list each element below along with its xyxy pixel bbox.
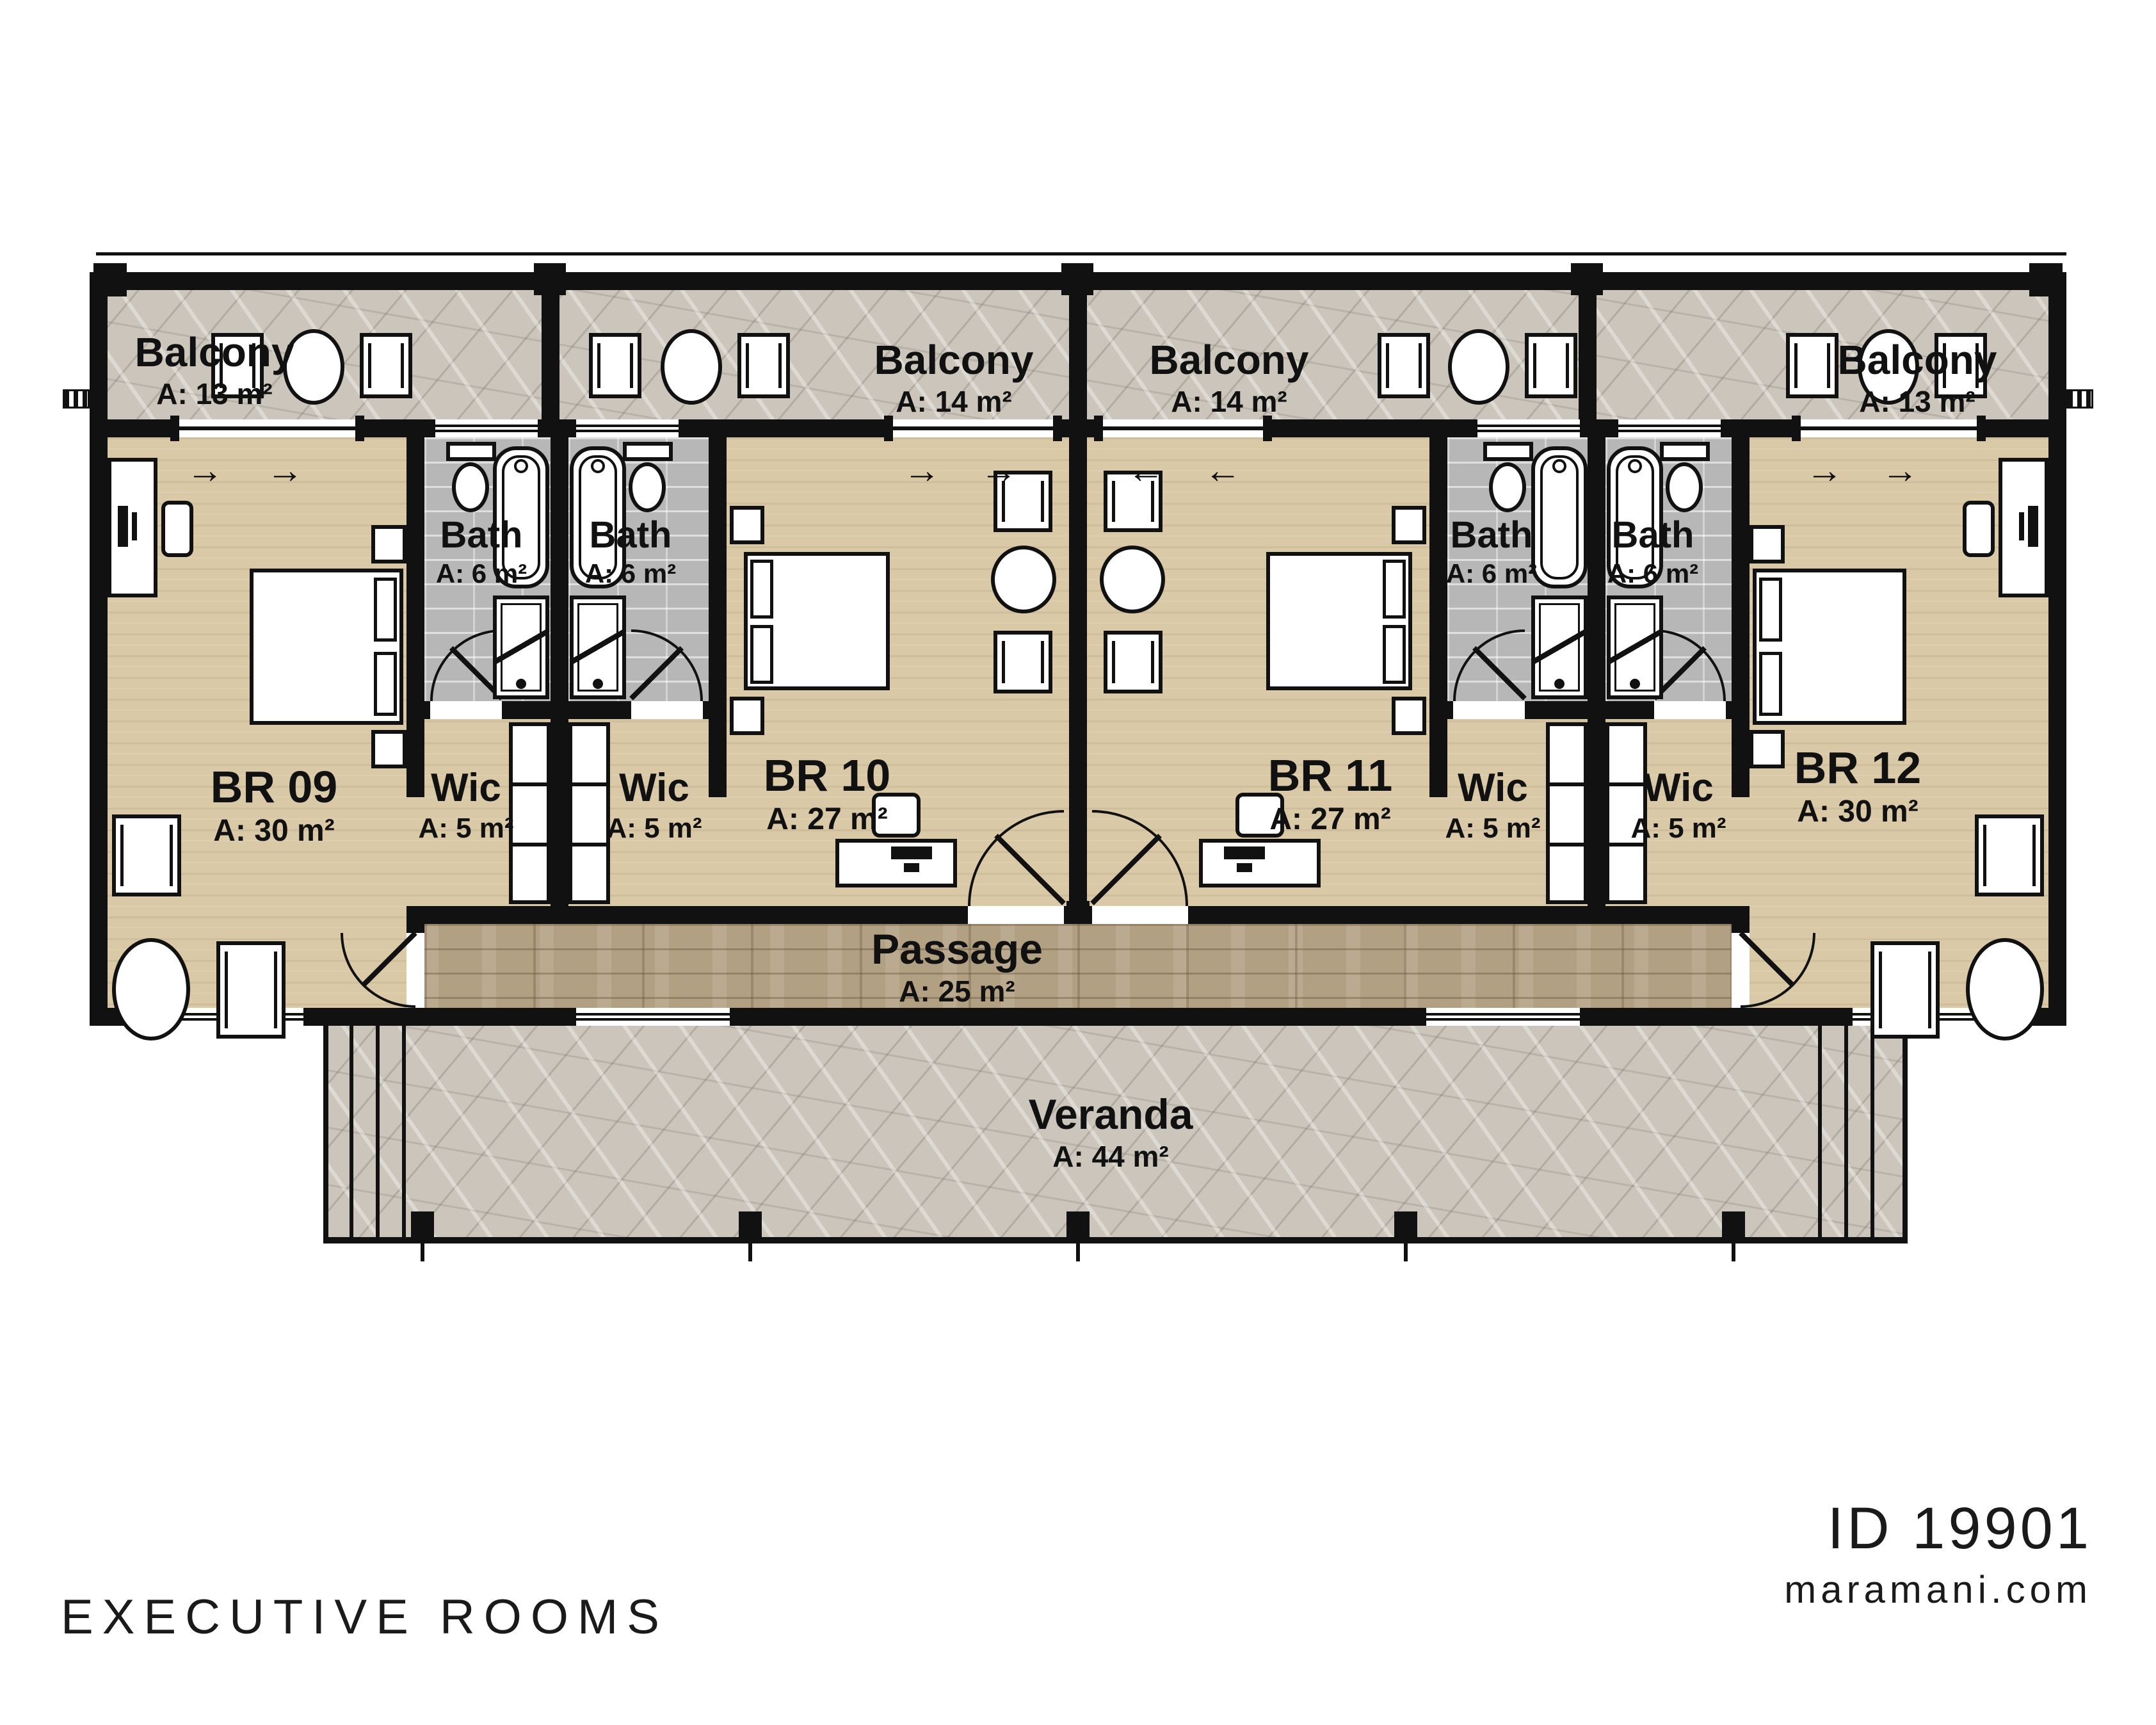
pillow: [374, 578, 397, 642]
monitor-icon: [1224, 846, 1265, 859]
room-area: A: 27 m²: [1269, 804, 1390, 835]
pillow: [750, 560, 773, 619]
bathcol-mid-wall: [1588, 437, 1605, 906]
room-label-wic-4: Wic A: 5 m²: [1630, 768, 1726, 843]
round-table: [112, 938, 190, 1041]
step-riser: [376, 1026, 380, 1242]
bathcol-right-wall: [1732, 437, 1750, 797]
shower: [493, 595, 549, 699]
room-name: Balcony: [135, 332, 294, 373]
sliding-door: [1103, 419, 1263, 437]
monitor-icon: [904, 863, 919, 872]
post: [1066, 901, 1090, 924]
bathcol-right-wall: [709, 437, 727, 797]
direction-arrow: →: [1881, 452, 1919, 489]
room-label-veranda: Veranda A: 44 m²: [1029, 1093, 1193, 1171]
round-table: [661, 329, 722, 405]
wall-section-marker: [2066, 389, 2093, 409]
monitor-icon: [132, 512, 137, 540]
round-table: [1966, 938, 2044, 1041]
step-riser: [1844, 1026, 1848, 1242]
room-name: BR 11: [1268, 753, 1393, 798]
direction-arrow: →: [1806, 452, 1843, 489]
room-name: BR 12: [1794, 745, 1921, 790]
chair: [994, 631, 1052, 693]
room-label-bath-3: Bath A: 6 m²: [1446, 517, 1537, 587]
room-area: A: 14 m²: [1171, 387, 1287, 416]
veranda-right-edge: [1903, 1026, 1908, 1242]
desk-chair: [161, 501, 193, 557]
direction-arrow: →: [903, 452, 940, 489]
door-opening: [1092, 906, 1188, 924]
room-area: A: 14 m²: [896, 387, 1011, 416]
room-name: BR 10: [764, 753, 890, 798]
room-area: A: 6 m²: [1607, 560, 1698, 587]
toilet: [1666, 462, 1703, 512]
room-name: Bath: [440, 517, 523, 554]
nightstand: [1750, 730, 1785, 768]
room-label-balcony-2: Balcony A: 14 m²: [874, 339, 1034, 416]
nightstand: [1392, 506, 1426, 544]
window: [435, 419, 538, 437]
room-label-wic-3: Wic A: 5 m²: [1445, 768, 1540, 843]
pillow: [1759, 652, 1782, 716]
bathcol-mid-wall: [551, 437, 568, 906]
window: [1477, 419, 1580, 437]
window: [1426, 1008, 1580, 1026]
direction-arrow: ←: [1204, 452, 1241, 489]
room-label-br12: BR 12 A: 30 m²: [1794, 745, 1921, 827]
room-area: A: 44 m²: [1052, 1142, 1168, 1171]
room-label-wic-2: Wic A: 5 m²: [606, 768, 702, 843]
toilet: [452, 462, 489, 512]
nightstand: [730, 506, 764, 544]
room-area: A: 5 m²: [1630, 814, 1726, 843]
shower: [570, 595, 626, 699]
roof-line: [96, 252, 2066, 255]
room-area: A: 27 m²: [766, 804, 887, 835]
room-area: A: 13 m²: [1859, 387, 1975, 416]
toilet: [623, 442, 673, 461]
monitor-icon: [2028, 506, 2038, 547]
wardrobe: [568, 722, 610, 904]
armchair: [112, 814, 181, 896]
veranda-post: [1066, 1211, 1090, 1243]
room-name: BR 09: [211, 765, 337, 809]
room-label-balcony-4: Balcony A: 13 m²: [1838, 339, 1997, 416]
nightstand: [1392, 697, 1426, 735]
window: [576, 419, 679, 437]
room-name: Bath: [1451, 517, 1533, 554]
chair: [360, 333, 412, 398]
room-name: Wic: [1458, 768, 1528, 808]
wall-right: [2048, 272, 2066, 1026]
room-label-balcony-3: Balcony A: 14 m²: [1150, 339, 1309, 416]
room-name: Bath: [1612, 517, 1694, 554]
balcony-divider-wall: [542, 290, 559, 437]
round-table: [991, 546, 1056, 613]
balcony-room-wall: [108, 419, 2048, 437]
room-label-br11: BR 11 A: 27 m²: [1268, 753, 1393, 835]
wall-left: [90, 272, 108, 1026]
toilet: [446, 442, 496, 461]
chair: [1870, 941, 1940, 1039]
room-area: A: 30 m²: [213, 816, 334, 846]
chair: [1104, 631, 1162, 693]
shower: [1531, 595, 1588, 699]
passage-floor: [424, 924, 1732, 1008]
pillow: [1759, 578, 1782, 642]
nightstand: [371, 730, 406, 768]
bathcol-left-wall: [406, 437, 424, 797]
room-name: Balcony: [1838, 339, 1997, 380]
wardrobe: [1546, 722, 1588, 904]
room-area: A: 5 m²: [418, 814, 513, 843]
room-name: Veranda: [1029, 1093, 1193, 1135]
toilet: [1489, 462, 1526, 512]
pillow: [1383, 625, 1406, 684]
veranda-left-edge: [323, 1026, 328, 1242]
toilet: [1660, 442, 1710, 461]
website-url: maramani.com: [1784, 1567, 2092, 1612]
chair: [1525, 333, 1577, 398]
room-area: A: 6 m²: [436, 560, 527, 587]
chair: [216, 941, 286, 1039]
monitor-icon: [891, 846, 932, 859]
window: [576, 1008, 730, 1026]
room-area: A: 25 m²: [899, 976, 1015, 1006]
nightstand: [371, 525, 406, 563]
veranda-bottom-edge: [323, 1237, 1908, 1243]
round-table: [1100, 546, 1165, 613]
room-area: A: 5 m²: [606, 814, 702, 843]
room-name: Wic: [619, 768, 689, 808]
armchair: [1975, 814, 2044, 896]
room-label-br09: BR 09 A: 30 m²: [211, 765, 337, 846]
toilet: [629, 462, 666, 512]
room-label-br10: BR 10 A: 27 m²: [764, 753, 890, 835]
shower: [1607, 595, 1663, 699]
nightstand: [730, 697, 764, 735]
balcony-divider-wall: [1579, 290, 1597, 437]
post: [2029, 263, 2063, 296]
toilet: [1483, 442, 1533, 461]
post: [93, 263, 127, 296]
veranda-post: [1394, 1211, 1417, 1243]
room-name: Balcony: [1150, 339, 1309, 380]
monitor-icon: [118, 506, 128, 547]
room-name: Wic: [431, 768, 501, 808]
step-riser: [1818, 1026, 1822, 1242]
bathcol-left-wall: [1429, 437, 1447, 797]
pillow: [1383, 560, 1406, 619]
door-opening: [631, 701, 703, 719]
chair: [589, 333, 641, 398]
nightstand: [1750, 525, 1785, 563]
round-table: [1448, 329, 1509, 405]
door-opening: [430, 701, 502, 719]
veranda-post: [1722, 1211, 1745, 1243]
wall-bottom: [90, 1008, 2066, 1026]
chair: [1786, 333, 1838, 398]
door-opening: [968, 906, 1064, 924]
step-riser: [1870, 1026, 1874, 1242]
plan-id: ID 19901: [1828, 1495, 2092, 1562]
window: [1618, 419, 1721, 437]
room-area: A: 5 m²: [1445, 814, 1540, 843]
room-label-wic-1: Wic A: 5 m²: [418, 768, 513, 843]
sliding-door: [1801, 419, 1977, 437]
monitor-icon: [1237, 863, 1252, 872]
direction-arrow: ←: [1127, 452, 1164, 489]
sliding-door: [893, 419, 1053, 437]
sliding-door: [179, 419, 355, 437]
room-label-bath-1: Bath A: 6 m²: [436, 517, 527, 587]
chair: [1378, 333, 1430, 398]
veranda-post: [739, 1211, 762, 1243]
bathtub: [1531, 446, 1588, 588]
plan-title: EXECUTIVE ROOMS: [61, 1589, 668, 1645]
desk-chair: [1963, 501, 1995, 557]
pillow: [750, 625, 773, 684]
step-riser: [402, 1026, 406, 1242]
chair: [737, 333, 790, 398]
step-riser: [350, 1026, 353, 1242]
room-name: Wic: [1643, 768, 1714, 808]
room-area: A: 6 m²: [1446, 560, 1537, 587]
room-label-balcony-1: Balcony A: 13 m²: [135, 332, 294, 409]
pillow: [374, 652, 397, 716]
wall-section-marker: [63, 389, 90, 409]
room-label-bath-4: Bath A: 6 m²: [1607, 517, 1698, 587]
door-opening: [1453, 701, 1525, 719]
direction-arrow: →: [266, 452, 303, 489]
monitor-icon: [2019, 512, 2024, 540]
room-area: A: 6 m²: [585, 560, 676, 587]
wardrobe: [509, 722, 551, 904]
door-opening: [1654, 701, 1726, 719]
floor-plan-canvas: → → → → ← ← → → Balcony A: 13 m² Balcony…: [0, 0, 2156, 1725]
room-label-passage: Passage A: 25 m²: [871, 928, 1043, 1006]
room-area: A: 30 m²: [1797, 797, 1918, 827]
veranda-post: [411, 1211, 434, 1243]
center-wall: [1069, 290, 1087, 924]
room-name: Bath: [590, 517, 672, 554]
direction-arrow: →: [186, 452, 223, 489]
room-name: Balcony: [874, 339, 1034, 380]
room-label-bath-2: Bath A: 6 m²: [585, 517, 676, 587]
direction-arrow: →: [980, 452, 1017, 489]
room-area: A: 13 m²: [156, 379, 272, 409]
room-name: Passage: [871, 928, 1043, 970]
